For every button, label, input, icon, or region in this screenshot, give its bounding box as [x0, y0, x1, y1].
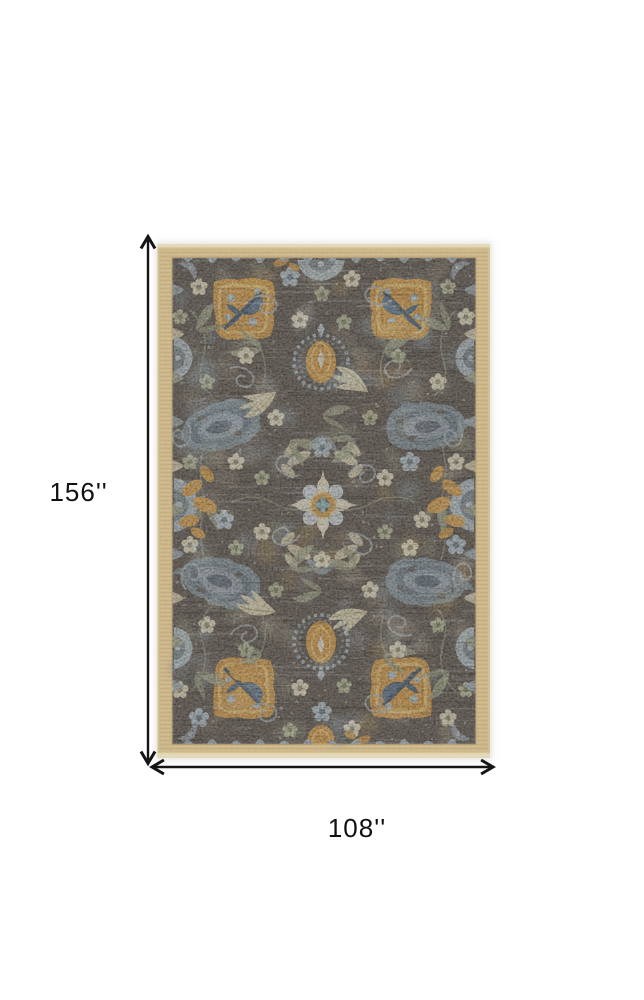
svg-text:108'': 108'' — [328, 813, 386, 843]
svg-text:156'': 156'' — [49, 477, 107, 507]
